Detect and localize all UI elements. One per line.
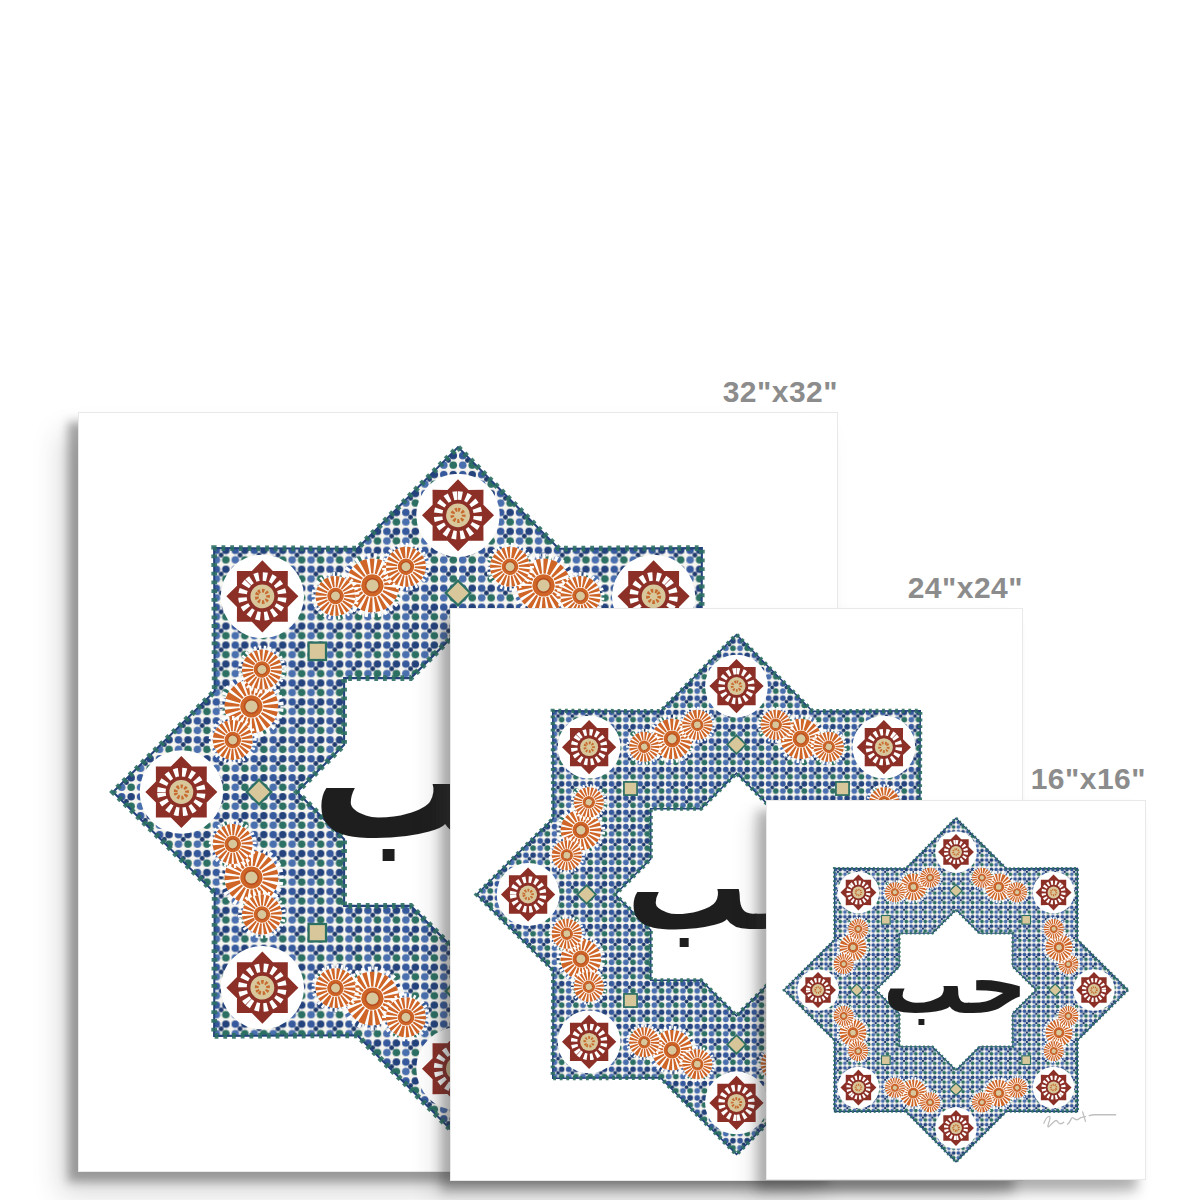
print-mockup-16in [766, 800, 1146, 1180]
size-label-24: 24"x24" [908, 572, 1023, 604]
size-label-16: 16"x16" [1031, 763, 1146, 795]
product-mockup-canvas: حب 32"x32" 24"x24" 16"x16" [0, 0, 1200, 1200]
size-label-32: 32"x32" [723, 376, 838, 408]
artwork-instance-16 [767, 801, 1145, 1179]
